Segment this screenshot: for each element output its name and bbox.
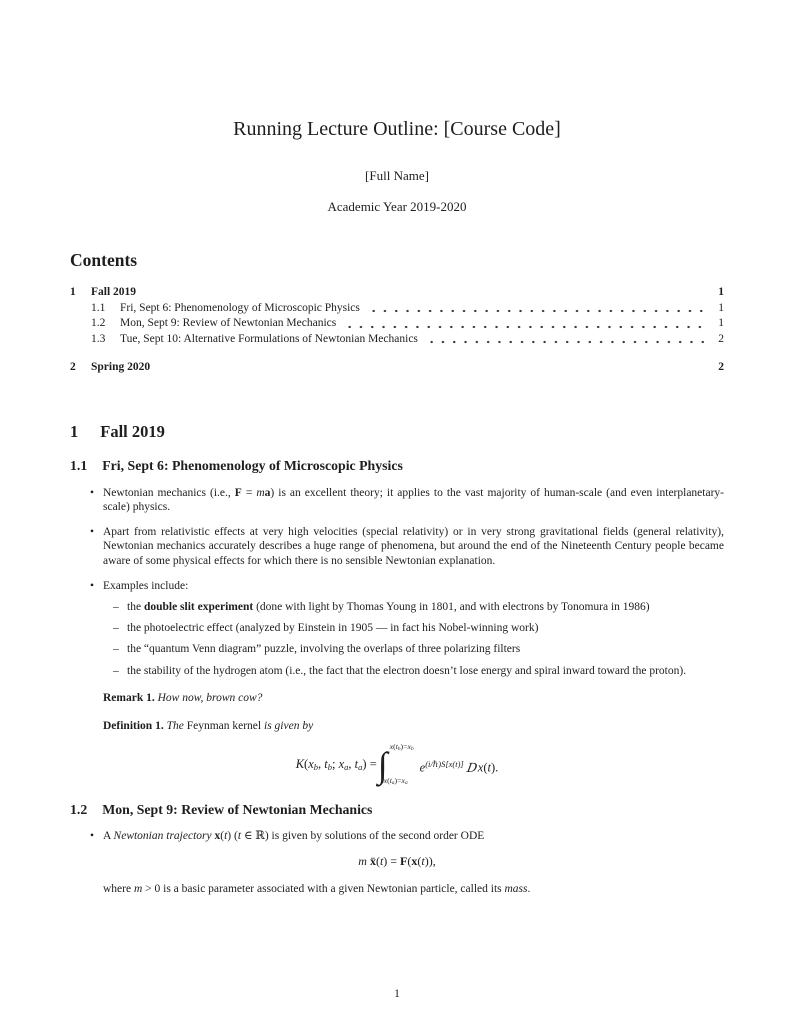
dash-icon: – bbox=[113, 642, 127, 657]
academic-year: Academic Year 2019-2020 bbox=[70, 200, 724, 215]
list-item-text: Newtonian mechanics (i.e., F = ma) is an… bbox=[103, 486, 724, 515]
toc-entry-fall-2019[interactable]: 1 Fall 2019 1 bbox=[70, 285, 724, 301]
author: [Full Name] bbox=[70, 169, 724, 184]
toc-leader bbox=[140, 285, 704, 301]
title-block: Running Lecture Outline: [Course Code] [… bbox=[70, 0, 724, 214]
bullet-list: • Newtonian mechanics (i.e., F = ma) is … bbox=[90, 486, 724, 678]
section-title: Fall 2019 bbox=[100, 422, 165, 441]
sublist-item: – the stability of the hydrogen atom (i.… bbox=[113, 664, 724, 679]
toc-dot-leader bbox=[422, 332, 704, 348]
subsection-heading-1-2: 1.2Mon, Sept 9: Review of Newtonian Mech… bbox=[70, 801, 724, 819]
integral-upper-limit: x(tb)=xb bbox=[390, 742, 414, 754]
remark-1: Remark 1. How now, brown cow? bbox=[103, 691, 724, 706]
subsection-title: Fri, Sept 6: Phenomenology of Microscopi… bbox=[102, 458, 403, 473]
toc-entry-number: 1 bbox=[70, 285, 91, 300]
where-clause: where m > 0 is a basic parameter associa… bbox=[103, 882, 724, 897]
toc-entry-title: Fall 2019 bbox=[91, 285, 136, 300]
page-number: 1 bbox=[394, 988, 400, 1000]
sublist-item-text: the double slit experiment (done with li… bbox=[127, 600, 724, 615]
list-item-text: Examples include: – the double slit expe… bbox=[103, 579, 724, 678]
definition-1: Definition 1. The Feynman kernel is give… bbox=[103, 719, 724, 734]
subsection-title: Mon, Sept 9: Review of Newtonian Mechani… bbox=[102, 802, 372, 817]
list-item-text: Apart from relativistic effects at very … bbox=[103, 525, 724, 569]
toc-entry-number: 1.1 bbox=[91, 301, 120, 316]
subsection-heading-1-1: 1.1Fri, Sept 6: Phenomenology of Microsc… bbox=[70, 457, 724, 475]
toc-entry-spring-2020[interactable]: 2 Spring 2020 2 bbox=[70, 360, 724, 376]
formula-lhs: K(xb, tb; xa, ta) = bbox=[296, 757, 377, 774]
subsection-number: 1.2 bbox=[70, 802, 87, 817]
toc-dot-leader bbox=[364, 301, 704, 317]
toc-entry-page: 1 bbox=[710, 285, 724, 300]
formula-rhs: e(i/ℏ)S[x(t)]Dx(t). bbox=[420, 757, 499, 775]
bullet-icon: • bbox=[90, 486, 103, 515]
toc-entry-number: 1.2 bbox=[91, 316, 120, 331]
document-page: Running Lecture Outline: [Course Code] [… bbox=[0, 0, 794, 1028]
bullet-list-1-2: • A Newtonian trajectory x(t) (t ∈ ℝ) is… bbox=[90, 829, 724, 844]
sublist-item: – the “quantum Venn diagram” puzzle, inv… bbox=[113, 642, 724, 657]
toc-heading: Contents bbox=[70, 248, 724, 272]
toc-entry-page: 1 bbox=[710, 316, 724, 331]
toc-entry-1-3[interactable]: 1.3 Tue, Sept 10: Alternative Formulatio… bbox=[70, 332, 724, 348]
list-item: • A Newtonian trajectory x(t) (t ∈ ℝ) is… bbox=[90, 829, 724, 844]
sublist-item: – the photoelectric effect (analyzed by … bbox=[113, 621, 724, 636]
dash-icon: – bbox=[113, 664, 127, 679]
toc-entry-page: 2 bbox=[710, 332, 724, 347]
sublist-item-text: the “quantum Venn diagram” puzzle, invol… bbox=[127, 642, 724, 657]
table-of-contents: Contents 1 Fall 2019 1 1.1 Fri, Sept 6: … bbox=[70, 248, 724, 376]
bullet-icon: • bbox=[90, 579, 103, 678]
bullet-icon: • bbox=[90, 829, 103, 844]
toc-entry-title: Tue, Sept 10: Alternative Formulations o… bbox=[120, 332, 418, 347]
sublist-item: – the double slit experiment (done with … bbox=[113, 600, 724, 615]
section-heading-fall-2019: 1Fall 2019 bbox=[70, 421, 724, 443]
sublist-item-text: the photoelectric effect (analyzed by Ei… bbox=[127, 621, 724, 636]
toc-entry-title: Spring 2020 bbox=[91, 360, 150, 375]
subsection-number: 1.1 bbox=[70, 458, 87, 473]
newton-ode-formula: m ẍ(t) = F(x(t)), bbox=[70, 854, 724, 869]
sublist-item-text: the stability of the hydrogen atom (i.e.… bbox=[127, 664, 724, 679]
list-item: • Apart from relativistic effects at ver… bbox=[90, 525, 724, 569]
page-footer: 1 bbox=[0, 987, 794, 1002]
toc-entry-number: 1.3 bbox=[91, 332, 120, 347]
examples-lead-in: Examples include: bbox=[103, 579, 724, 594]
toc-dot-leader bbox=[340, 316, 704, 332]
toc-entry-page: 1 bbox=[710, 301, 724, 316]
toc-leader bbox=[154, 360, 704, 376]
toc-entry-1-1[interactable]: 1.1 Fri, Sept 6: Phenomenology of Micros… bbox=[70, 301, 724, 317]
bullet-icon: • bbox=[90, 525, 103, 569]
list-item: • Newtonian mechanics (i.e., F = ma) is … bbox=[90, 486, 724, 515]
list-item: • Examples include: – the double slit ex… bbox=[90, 579, 724, 678]
toc-list: 1 Fall 2019 1 1.1 Fri, Sept 6: Phenomeno… bbox=[70, 285, 724, 376]
toc-entry-title: Mon, Sept 9: Review of Newtonian Mechani… bbox=[120, 316, 336, 331]
list-item-text: A Newtonian trajectory x(t) (t ∈ ℝ) is g… bbox=[103, 829, 724, 844]
examples-sublist: – the double slit experiment (done with … bbox=[113, 600, 724, 678]
toc-entry-title: Fri, Sept 6: Phenomenology of Microscopi… bbox=[120, 301, 360, 316]
toc-entry-page: 2 bbox=[710, 360, 724, 375]
feynman-kernel-formula: K(xb, tb; xa, ta) = ∫ x(tb)=xb x(ta)=xa … bbox=[70, 742, 724, 788]
integral-lower-limit: x(ta)=xa bbox=[384, 776, 414, 788]
integral: ∫ x(tb)=xb x(ta)=xa bbox=[378, 742, 414, 788]
section-number: 1 bbox=[70, 422, 78, 441]
toc-entry-1-2[interactable]: 1.2 Mon, Sept 9: Review of Newtonian Mec… bbox=[70, 316, 724, 332]
document-body: 1Fall 2019 1.1Fri, Sept 6: Phenomenology… bbox=[70, 421, 724, 896]
integral-bounds: x(tb)=xb x(ta)=xa bbox=[388, 742, 414, 788]
toc-entry-number: 2 bbox=[70, 360, 91, 375]
document-title: Running Lecture Outline: [Course Code] bbox=[70, 116, 724, 142]
dash-icon: – bbox=[113, 621, 127, 636]
dash-icon: – bbox=[113, 600, 127, 615]
